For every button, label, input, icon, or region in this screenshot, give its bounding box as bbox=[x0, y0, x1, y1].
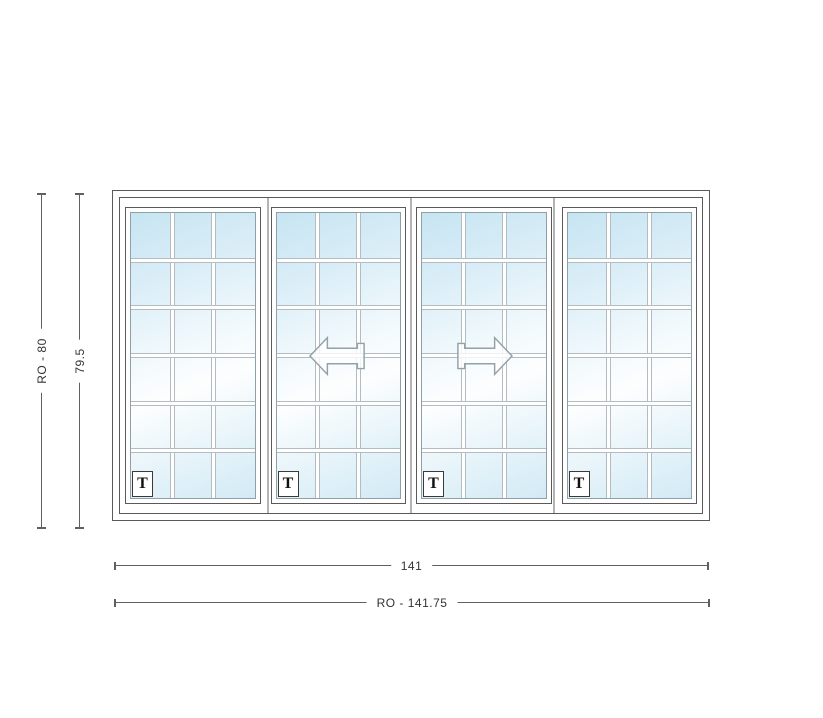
muntin-bar bbox=[568, 258, 692, 263]
door-panel-1: T bbox=[125, 207, 261, 504]
panel-divider bbox=[411, 198, 412, 513]
muntin-bar bbox=[568, 305, 692, 310]
window-frame: T T bbox=[112, 190, 710, 521]
drawing-canvas: RO - 80 79.5 bbox=[0, 0, 823, 718]
door-panel-2: T bbox=[271, 207, 407, 504]
tempered-glass-badge: T bbox=[569, 471, 590, 497]
muntin-bar bbox=[131, 305, 255, 310]
glass-panel-1: T bbox=[130, 212, 256, 499]
tempered-glass-badge: T bbox=[423, 471, 444, 497]
dim-line-width-ro: RO - 141.75 bbox=[114, 602, 710, 603]
door-panel-4: T bbox=[562, 207, 698, 504]
muntin-bar bbox=[422, 448, 546, 453]
glass-panel-2: T bbox=[276, 212, 402, 499]
muntin-bar bbox=[568, 353, 692, 358]
glass-panel-4: T bbox=[567, 212, 693, 499]
muntin-bar bbox=[277, 448, 401, 453]
muntin-bar bbox=[131, 353, 255, 358]
muntin-bar bbox=[131, 448, 255, 453]
slide-left-arrow-icon bbox=[309, 332, 367, 380]
dim-line-height-ro: RO - 80 bbox=[41, 193, 42, 529]
slide-right-arrow-icon bbox=[455, 332, 513, 380]
muntin-bar bbox=[131, 258, 255, 263]
dim-line-height: 79.5 bbox=[79, 193, 80, 529]
muntin-bar bbox=[422, 305, 546, 310]
panel-divider bbox=[554, 198, 555, 513]
muntin-bar bbox=[277, 258, 401, 263]
sash-row: T T bbox=[125, 207, 697, 504]
panel-divider bbox=[268, 198, 269, 513]
dim-label-width-ro: RO - 141.75 bbox=[367, 595, 458, 611]
window-frame-inner: T T bbox=[119, 197, 703, 514]
muntin-bar bbox=[568, 448, 692, 453]
muntin-bar bbox=[422, 258, 546, 263]
tempered-glass-badge: T bbox=[278, 471, 299, 497]
tempered-glass-badge: T bbox=[132, 471, 153, 497]
muntin-bar bbox=[422, 401, 546, 406]
dim-label-width: 141 bbox=[391, 558, 433, 574]
dim-line-width: 141 bbox=[114, 565, 709, 566]
glass-panel-3: T bbox=[421, 212, 547, 499]
door-panel-3: T bbox=[416, 207, 552, 504]
muntin-bar bbox=[131, 401, 255, 406]
muntin-bar bbox=[277, 401, 401, 406]
dim-label-height-ro: RO - 80 bbox=[32, 329, 52, 393]
muntin-bar bbox=[277, 305, 401, 310]
dim-label-height: 79.5 bbox=[70, 339, 90, 382]
muntin-bar bbox=[568, 401, 692, 406]
